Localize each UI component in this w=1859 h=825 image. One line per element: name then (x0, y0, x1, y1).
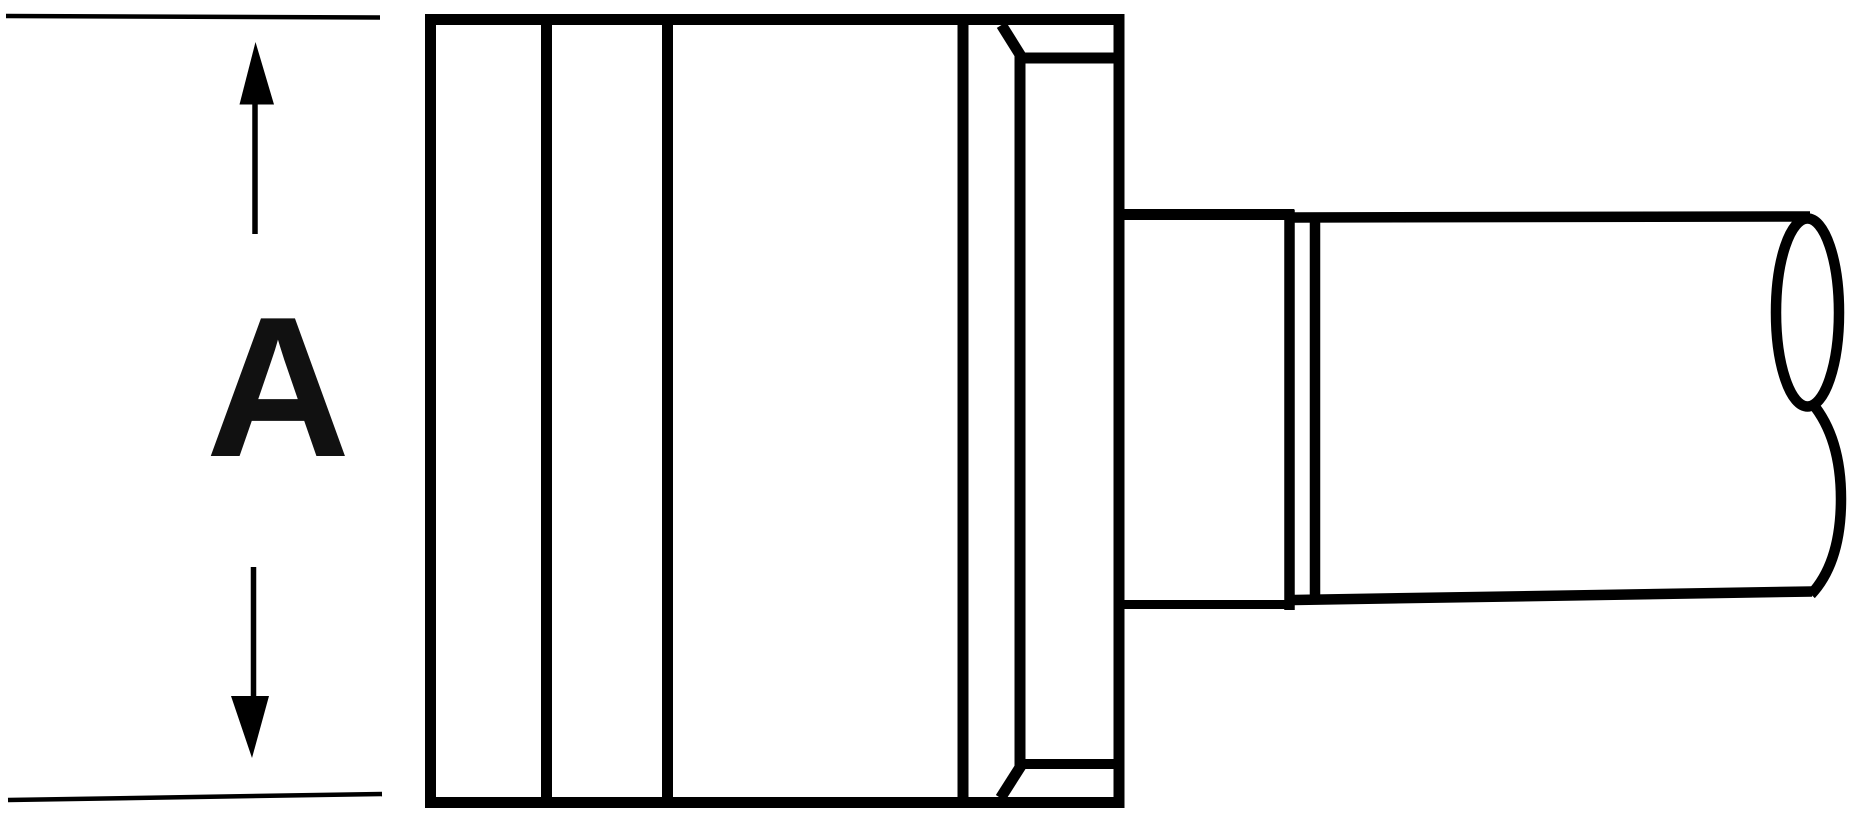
svg-text:A: A (206, 276, 350, 499)
